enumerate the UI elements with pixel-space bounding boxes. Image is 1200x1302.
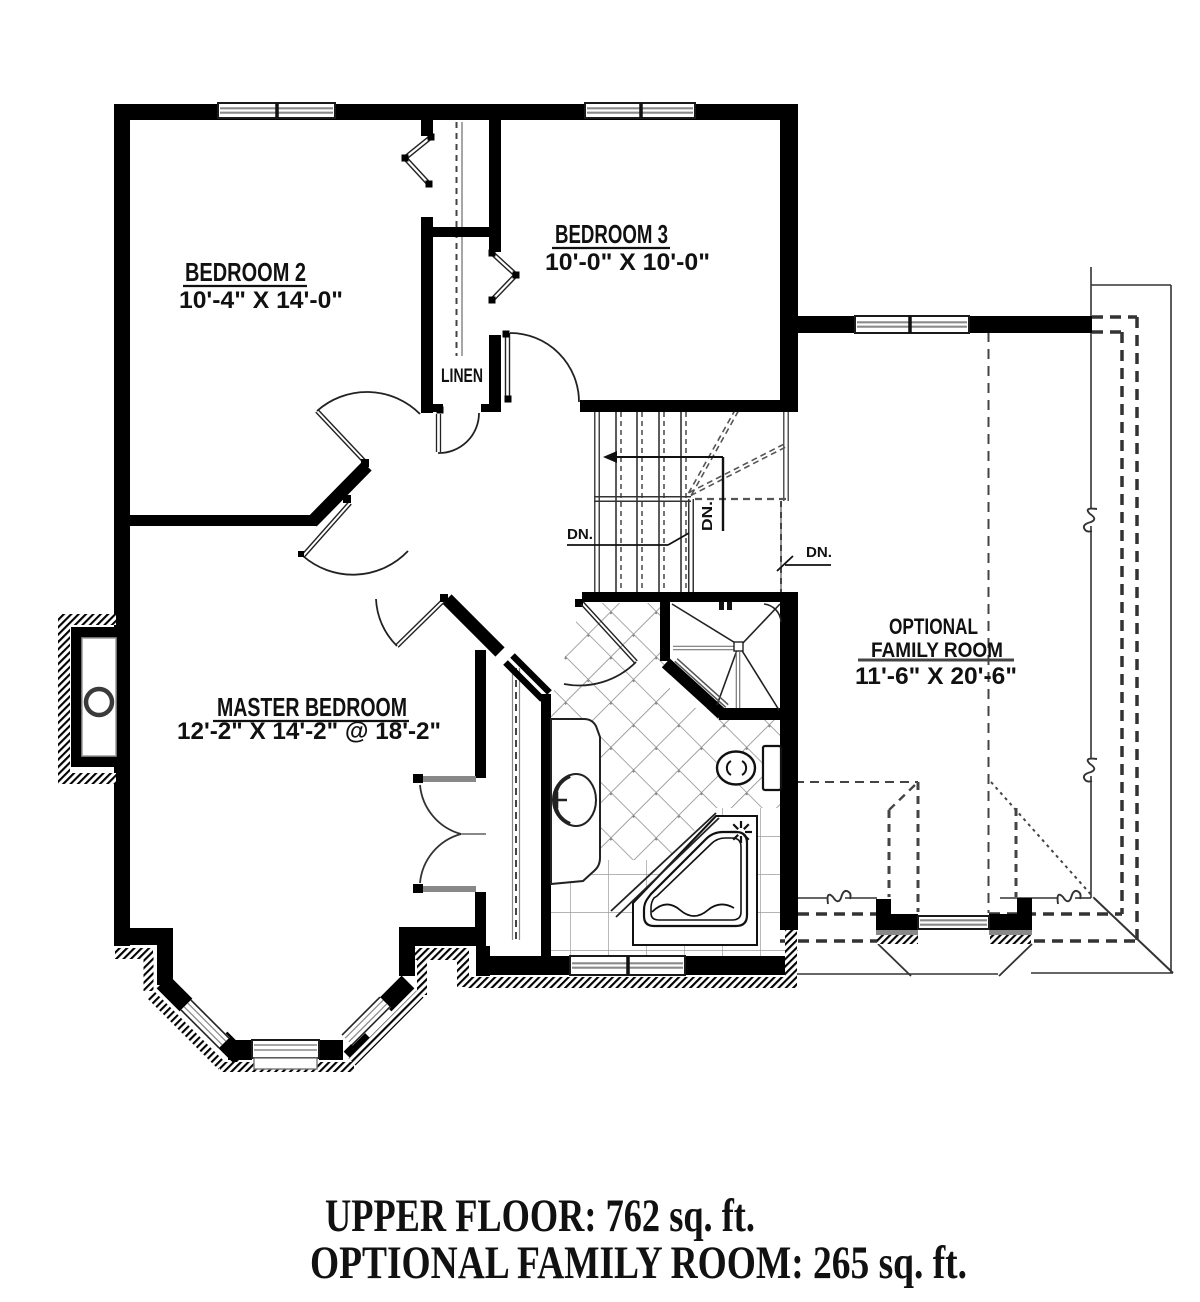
svg-text:LINEN: LINEN — [441, 366, 483, 387]
svg-text:UPPER FLOOR: 762 sq. ft.: UPPER FLOOR: 762 sq. ft. — [325, 1190, 755, 1242]
svg-text:10'-0" X 10'-0": 10'-0" X 10'-0" — [545, 249, 710, 276]
svg-text:OPTIONAL FAMILY ROOM: 265 sq.: OPTIONAL FAMILY ROOM: 265 sq. ft. — [310, 1237, 967, 1289]
svg-text:OPTIONAL: OPTIONAL — [889, 614, 978, 639]
svg-text:12'-2" X 14'-2" @ 18'-2": 12'-2" X 14'-2" @ 18'-2" — [177, 718, 441, 745]
svg-text:11'-6" X 20'-6": 11'-6" X 20'-6" — [855, 663, 1017, 690]
svg-text:DN.: DN. — [806, 544, 832, 561]
svg-text:10'-4" X 14'-0": 10'-4" X 14'-0" — [179, 287, 343, 314]
svg-text:DN.: DN. — [699, 501, 716, 531]
svg-text:DN.: DN. — [567, 526, 593, 543]
svg-text:BEDROOM 3: BEDROOM 3 — [555, 219, 668, 249]
svg-text:BEDROOM 2: BEDROOM 2 — [185, 257, 306, 287]
